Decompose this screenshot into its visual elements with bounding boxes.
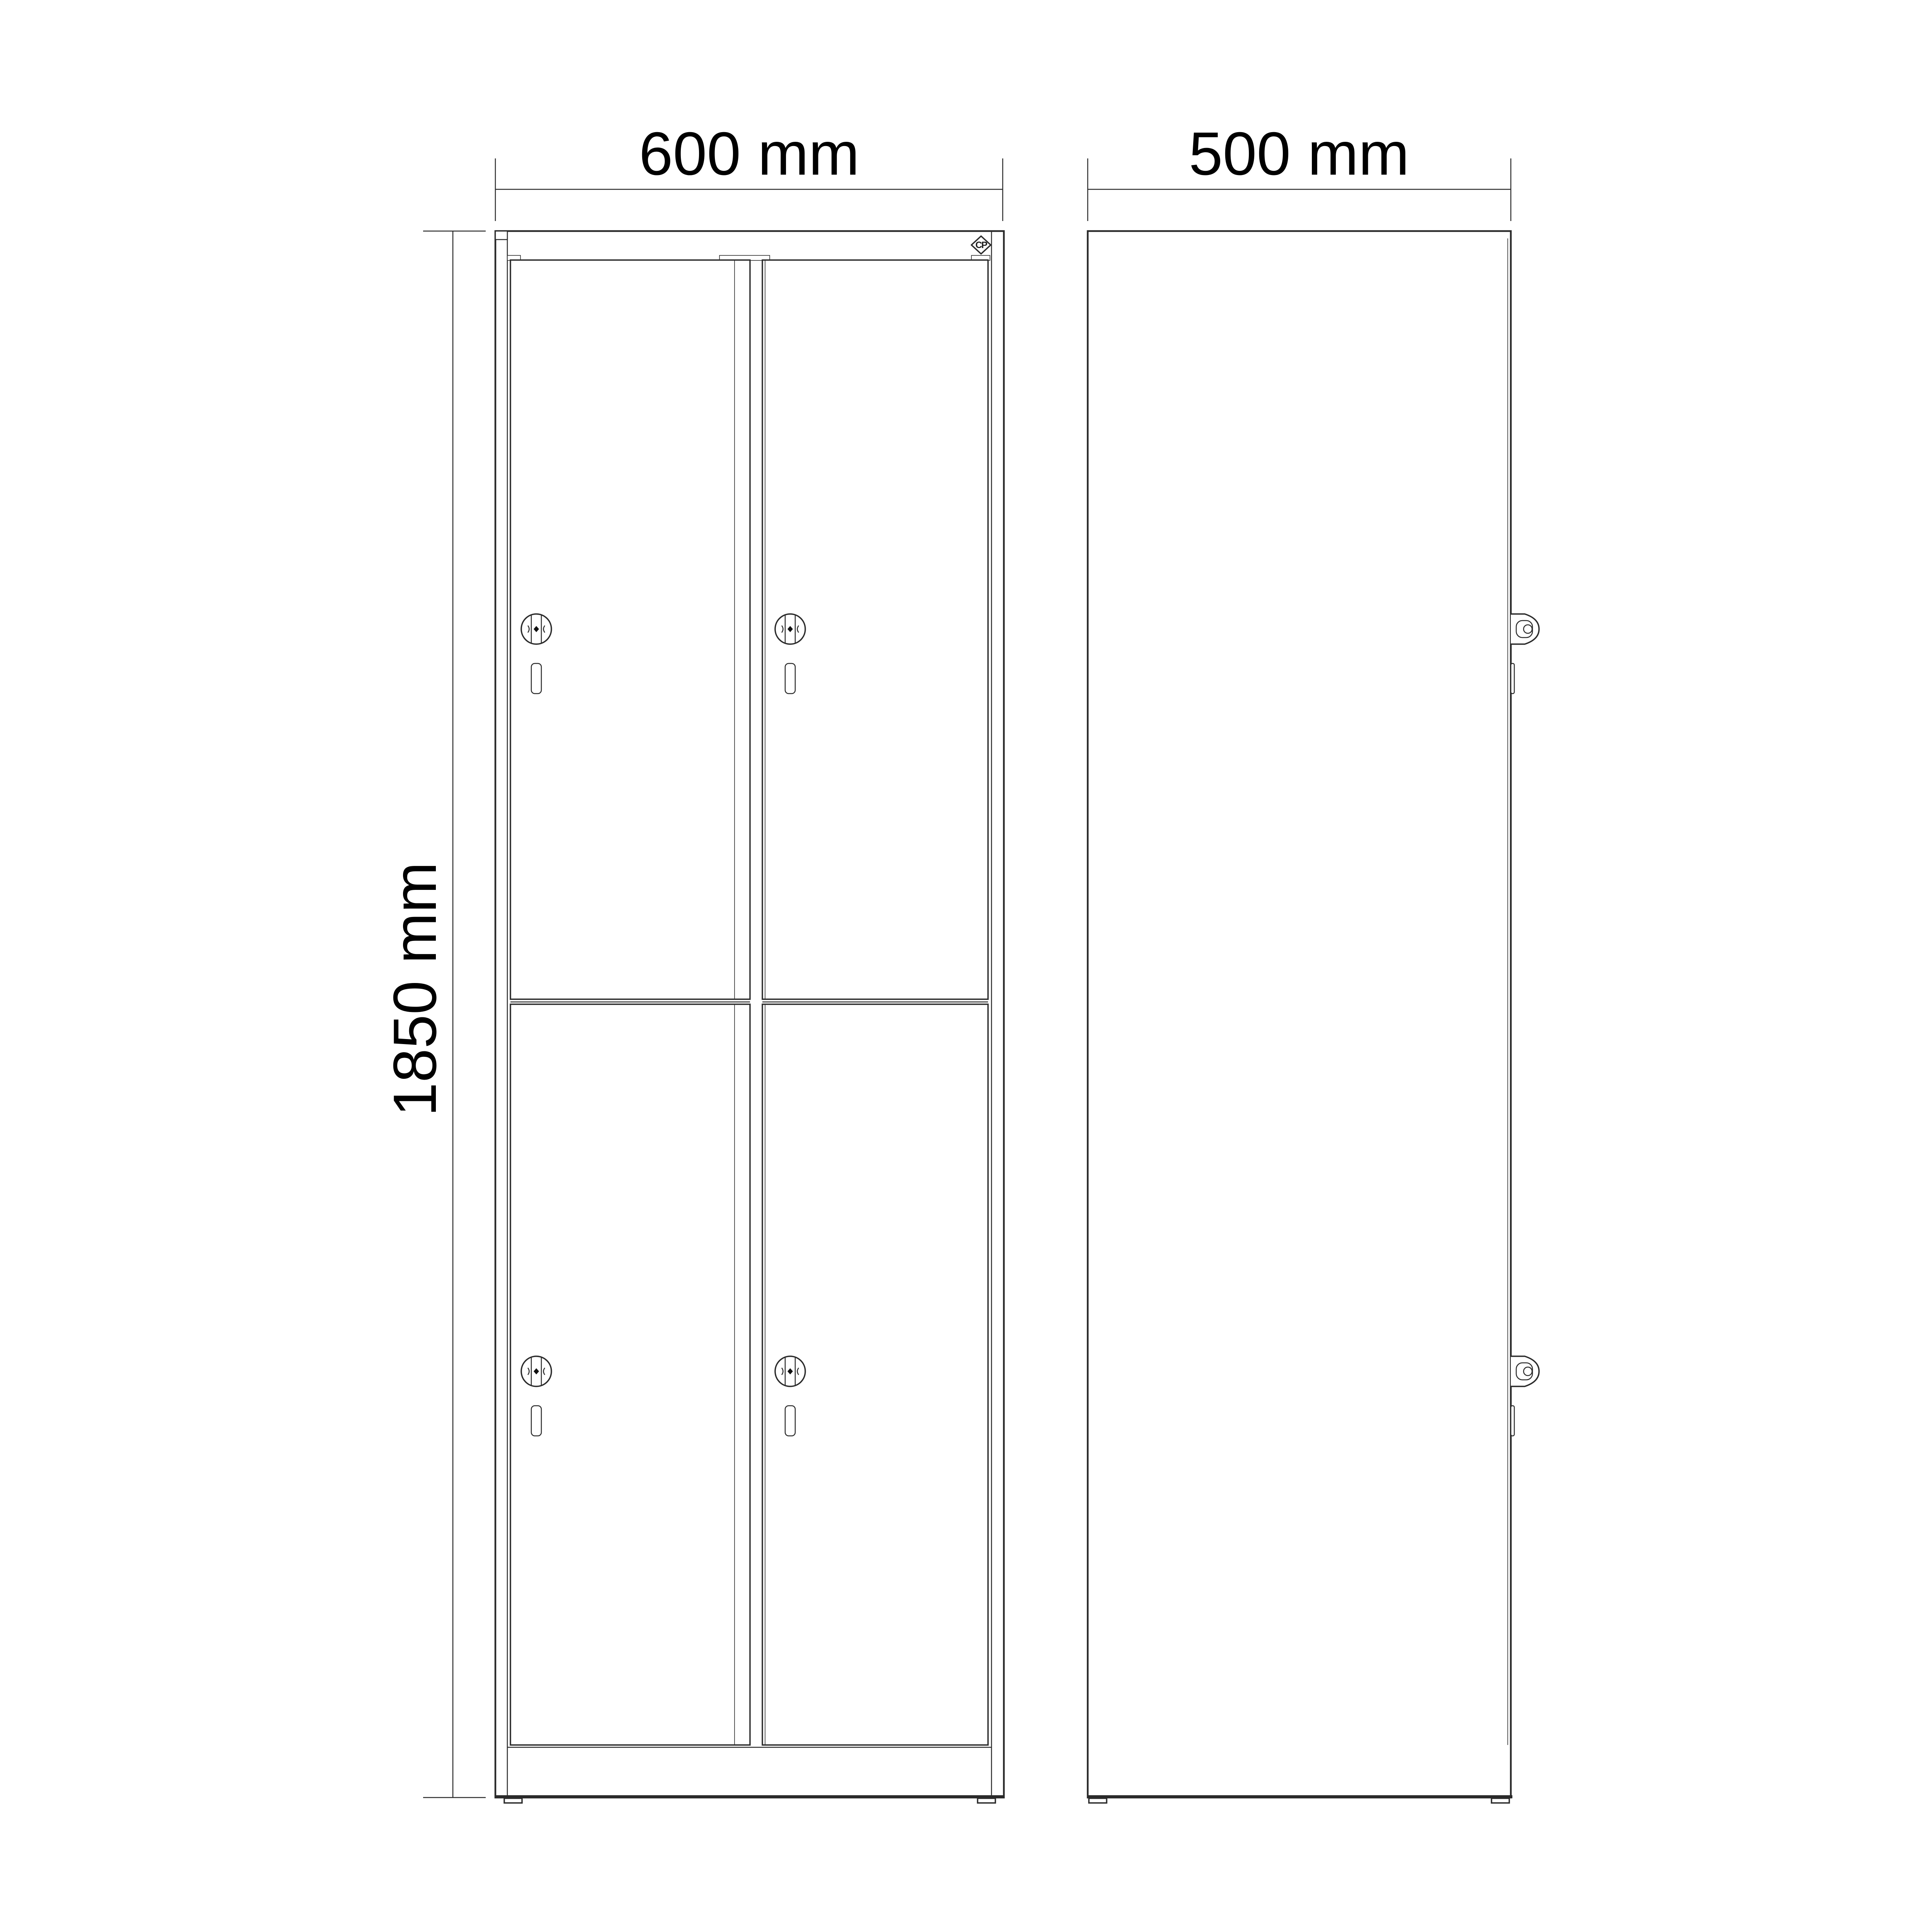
slot-lower-left: [531, 1406, 541, 1436]
dimension-front-width: 600 mm: [495, 120, 1003, 221]
side-lock-lower: [1511, 1356, 1539, 1386]
logo-letters: CP: [975, 240, 987, 250]
slot-lower-right: [785, 1406, 795, 1436]
dimension-side-depth: 500 mm: [1088, 120, 1511, 221]
side-right-foot: [1492, 1798, 1509, 1803]
technical-drawing-canvas: CP 600 mm 500 mm: [0, 0, 1932, 1932]
front-right-foot: [978, 1798, 995, 1803]
side-depth-label: 500 mm: [1189, 120, 1410, 188]
front-wall-cap: [495, 231, 507, 240]
front-width-label: 600 mm: [639, 120, 860, 188]
lock-lower-left: [521, 1356, 551, 1386]
side-cabinet-outline: [1088, 231, 1511, 1798]
front-left-foot: [504, 1798, 522, 1803]
lock-upper-right: [775, 614, 805, 644]
side-view: [1087, 231, 1539, 1803]
locker-technical-drawing: CP 600 mm 500 mm: [0, 0, 1932, 1932]
side-lock-upper: [1511, 614, 1539, 644]
side-slot-upper: [1511, 663, 1514, 694]
height-label: 1850 mm: [381, 862, 449, 1117]
side-left-foot: [1089, 1798, 1107, 1803]
slot-upper-right: [785, 663, 795, 694]
side-slot-lower: [1511, 1406, 1514, 1436]
front-view: CP: [495, 231, 1004, 1803]
lock-lower-right: [775, 1356, 805, 1386]
lock-upper-left: [521, 614, 551, 644]
slot-upper-left: [531, 663, 541, 694]
dimension-height: 1850 mm: [381, 231, 486, 1798]
